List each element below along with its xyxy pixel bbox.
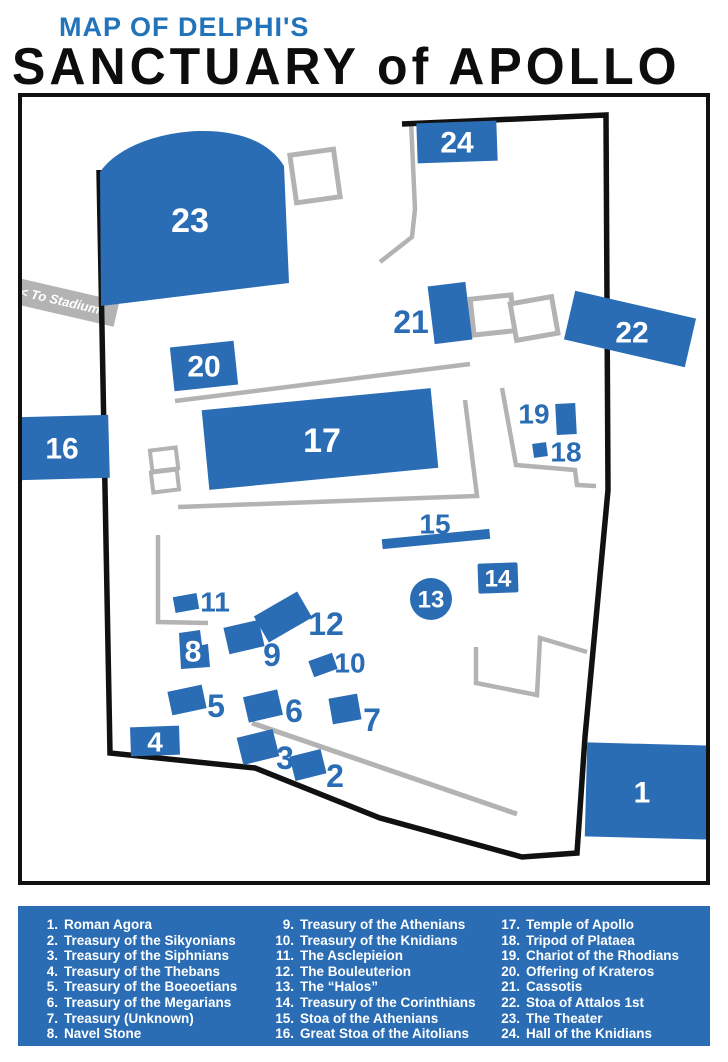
legend-item-label: Offering of Krateros — [526, 964, 654, 980]
legend-item-label: Treasury of the Athenians — [300, 917, 465, 933]
legend-item-number: 7. — [32, 1011, 58, 1027]
legend-item: 21.Cassotis — [494, 979, 694, 995]
site-6-treasury-megarians — [243, 689, 283, 722]
ruin-outline-square — [510, 297, 558, 341]
label-23: 23 — [171, 202, 209, 240]
legend-item-number: 21. — [494, 979, 520, 995]
label-6: 6 — [285, 693, 303, 729]
site-12-bouleuterion — [254, 592, 312, 643]
legend-item: 4.Treasury of the Thebans — [32, 964, 268, 980]
site-3-treasury-siphnians — [237, 729, 280, 765]
legend-item-label: The Bouleuterion — [300, 964, 411, 980]
legend-item: 3.Treasury of the Siphnians — [32, 948, 268, 964]
legend-item-label: The Theater — [526, 1011, 603, 1027]
legend-item-number: 12. — [268, 964, 294, 980]
legend-item-label: Treasury of the Sikyonians — [64, 933, 236, 949]
legend-item-label: The Asclepieion — [300, 948, 403, 964]
legend-item-number: 9. — [268, 917, 294, 933]
legend-item: 23.The Theater — [494, 1011, 694, 1027]
label-2: 2 — [326, 758, 344, 794]
label-11: 11 — [200, 587, 230, 618]
site-11-asclepieion — [173, 593, 199, 613]
label-5: 5 — [207, 688, 225, 724]
sanctuary-map: < To Stadium 23 24 22 16 20 1 — [22, 97, 706, 881]
legend-item-label: Treasury of the Knidians — [300, 933, 458, 949]
legend-item-label: Treasury of the Siphnians — [64, 948, 229, 964]
label-16: 16 — [45, 433, 78, 466]
legend-item-label: Treasury of the Boeoetians — [64, 979, 237, 995]
legend-column-2: 9.Treasury of the Athenians 10.Treasury … — [268, 917, 494, 1046]
legend-item-number: 23. — [494, 1011, 520, 1027]
label-4: 4 — [147, 727, 163, 758]
legend-item-number: 17. — [494, 917, 520, 933]
ruin-outline-square — [470, 295, 515, 335]
legend-item: 7.Treasury (Unknown) — [32, 1011, 268, 1027]
site-18-tripod-of-plataea — [532, 442, 548, 458]
legend-item-number: 14. — [268, 995, 294, 1011]
legend-item-label: Treasury of the Megarians — [64, 995, 231, 1011]
legend-item-label: Roman Agora — [64, 917, 152, 933]
label-24: 24 — [440, 127, 474, 160]
label-17: 17 — [303, 422, 341, 460]
legend-item: 6.Treasury of the Megarians — [32, 995, 268, 1011]
legend-item-label: Tripod of Plataea — [526, 933, 635, 949]
legend-item-label: Hall of the Knidians — [526, 1026, 652, 1042]
page-title: SANCTUARY of APOLLO — [12, 36, 681, 96]
label-8: 8 — [185, 636, 202, 669]
legend-item-number: 8. — [32, 1026, 58, 1042]
legend-item-number: 16. — [268, 1026, 294, 1042]
legend-item-number: 10. — [268, 933, 294, 949]
label-12: 12 — [308, 606, 344, 642]
label-14: 14 — [485, 566, 512, 593]
legend-item-label: Stoa of Attalos 1st — [526, 995, 644, 1011]
label-13: 13 — [418, 587, 445, 614]
legend-item: 20.Offering of Krateros — [494, 964, 694, 980]
legend-item: 17.Temple of Apollo — [494, 917, 694, 933]
legend-item-label: Treasury of the Thebans — [64, 964, 220, 980]
legend-item: 11.The Asclepieion — [268, 948, 494, 964]
legend-item: 9.Treasury of the Athenians — [268, 917, 494, 933]
legend-item-number: 13. — [268, 979, 294, 995]
site-5-treasury-boeoetians — [167, 685, 206, 716]
label-22: 22 — [615, 317, 648, 350]
legend-item-number: 4. — [32, 964, 58, 980]
legend-item: 13.The “Halos” — [268, 979, 494, 995]
legend-column-3: 17.Temple of Apollo 18.Tripod of Plataea… — [494, 917, 694, 1046]
path-upper-wall — [380, 121, 415, 262]
legend-item-label: Temple of Apollo — [526, 917, 634, 933]
ruin-outline-small-square — [151, 469, 179, 492]
legend-item: 24.Hall of the Knidians — [494, 1026, 694, 1042]
label-19: 19 — [518, 399, 549, 430]
legend-item: 1.Roman Agora — [32, 917, 268, 933]
site-9-treasury-athenians — [223, 620, 264, 654]
legend-item: 2.Treasury of the Sikyonians — [32, 933, 268, 949]
legend-item-number: 15. — [268, 1011, 294, 1027]
site-7-treasury-unknown — [328, 694, 361, 725]
legend-item-number: 5. — [32, 979, 58, 995]
legend-item-number: 1. — [32, 917, 58, 933]
legend-item: 14.Treasury of the Corinthians — [268, 995, 494, 1011]
site-2-treasury-sikyonians — [289, 749, 326, 781]
legend-item-label: The “Halos” — [300, 979, 378, 995]
ruin-outline-square — [290, 149, 340, 203]
legend-column-1: 1.Roman Agora 2.Treasury of the Sikyonia… — [32, 917, 268, 1046]
legend-item-number: 3. — [32, 948, 58, 964]
legend-item-number: 6. — [32, 995, 58, 1011]
legend-item: 19.Chariot of the Rhodians — [494, 948, 694, 964]
legend-item-number: 20. — [494, 964, 520, 980]
label-18: 18 — [550, 437, 581, 468]
label-7: 7 — [363, 702, 381, 738]
label-9: 9 — [263, 637, 281, 673]
label-20: 20 — [187, 351, 220, 384]
label-1: 1 — [634, 777, 651, 810]
legend-item: 12.The Bouleuterion — [268, 964, 494, 980]
label-10: 10 — [334, 648, 365, 679]
legend-item: 16.Great Stoa of the Aitolians — [268, 1026, 494, 1042]
map-frame: < To Stadium 23 24 22 16 20 1 — [18, 93, 710, 885]
legend-item-label: Chariot of the Rhodians — [526, 948, 679, 964]
legend-item: 8.Navel Stone — [32, 1026, 268, 1042]
legend-item: 5.Treasury of the Boeoetians — [32, 979, 268, 995]
site-10-treasury-knidians — [308, 653, 337, 678]
wall-zigzag — [476, 638, 587, 695]
legend-item-number: 18. — [494, 933, 520, 949]
legend-item: 10.Treasury of the Knidians — [268, 933, 494, 949]
site-19-chariot-of-rhodians — [555, 403, 577, 435]
legend-item-number: 22. — [494, 995, 520, 1011]
label-15: 15 — [419, 509, 450, 540]
legend-item-number: 11. — [268, 948, 294, 964]
label-21: 21 — [393, 304, 429, 340]
legend-item: 18.Tripod of Plataea — [494, 933, 694, 949]
legend-item-number: 19. — [494, 948, 520, 964]
legend-item-label: Treasury of the Corinthians — [300, 995, 476, 1011]
legend-item-label: Great Stoa of the Aitolians — [300, 1026, 469, 1042]
legend-item: 15.Stoa of the Athenians — [268, 1011, 494, 1027]
legend-item-label: Stoa of the Athenians — [300, 1011, 438, 1027]
site-21-cassotis — [428, 282, 473, 344]
legend-item-label: Cassotis — [526, 979, 582, 995]
legend-item-number: 2. — [32, 933, 58, 949]
legend-item-label: Navel Stone — [64, 1026, 141, 1042]
label-3: 3 — [276, 740, 294, 776]
legend-item: 22.Stoa of Attalos 1st — [494, 995, 694, 1011]
legend-item-label: Treasury (Unknown) — [64, 1011, 194, 1027]
map-legend: 1.Roman Agora 2.Treasury of the Sikyonia… — [18, 906, 710, 1046]
legend-item-number: 24. — [494, 1026, 520, 1042]
